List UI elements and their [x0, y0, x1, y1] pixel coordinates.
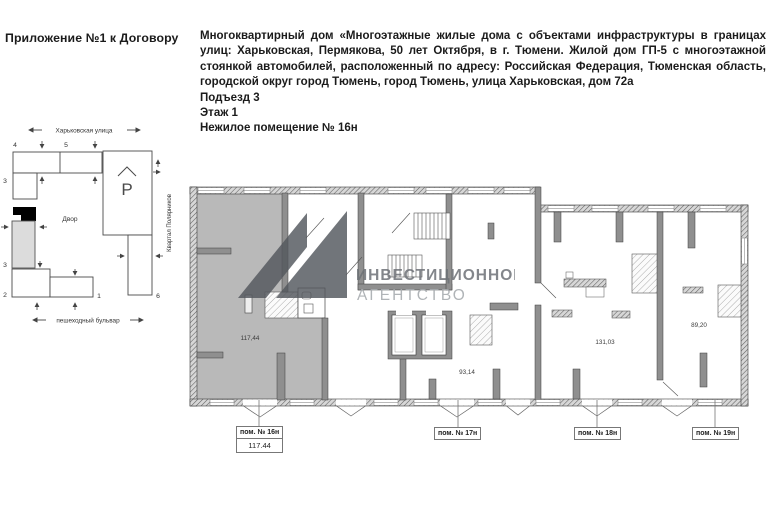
num-1: 1 [97, 293, 101, 300]
unit-box-19n: пом. № 19н [692, 427, 739, 440]
watermark-line1: ИНВЕСТИЦИОННОЕ [356, 267, 515, 284]
boulevard-label: пешеходный бульвар [56, 317, 120, 325]
unit-18n-label: пом. № 18н [575, 428, 620, 439]
area-17n: 93,14 [459, 369, 475, 376]
area-18n: 131,03 [595, 339, 615, 346]
num-5: 5 [64, 142, 68, 149]
building-description: Многоквартирный дом «Многоэтажные жилые … [200, 29, 766, 91]
unit-16n-area: 117.44 [237, 438, 282, 452]
unit-box-17n: пом. № 17н [434, 427, 481, 440]
unit-box-16n: пом. № 16н 117.44 [236, 426, 283, 453]
unit-19n-label: пом. № 19н [693, 428, 738, 439]
unit-box-18n: пом. № 18н [574, 427, 621, 440]
num-3-top: 3 [3, 178, 7, 185]
site-plan: Харьковская улица P 4 5 3 3 2 1 6 [0, 115, 190, 330]
num-6: 6 [156, 293, 160, 300]
appendix-title: Приложение №1 к Договору [5, 31, 195, 45]
watermark-line2: АГЕНТСТВО [357, 287, 467, 304]
subject-premises-marker [13, 207, 36, 221]
entrance-line: Подъезд 3 [200, 91, 766, 106]
building-description-block: Многоквартирный дом «Многоэтажные жилые … [200, 29, 766, 137]
appendix-page: Приложение №1 к Договору Многоквартирный… [0, 0, 770, 510]
unit-17n-label: пом. № 17н [435, 428, 480, 439]
num-2: 2 [3, 292, 7, 299]
agency-logo-icon [238, 211, 347, 298]
area-19n: 89,20 [691, 322, 707, 329]
street-top-label: Харьковская улица [56, 128, 113, 135]
svg-text:P: P [121, 180, 132, 199]
courtyard-label: Двор [62, 216, 78, 223]
floor-line: Этаж 1 [200, 106, 766, 121]
subject-building [12, 221, 35, 268]
unit-16n-label: пом. № 16н [237, 427, 282, 438]
agency-watermark: ИНВЕСТИЦИОННОЕ АГЕНТСТВО [225, 195, 515, 355]
num-3-bottom: 3 [3, 262, 7, 269]
quarter-right-label: Квартал Полярников [167, 194, 173, 252]
premise-line: Нежилое помещение № 16н [200, 121, 766, 136]
num-4: 4 [13, 142, 17, 149]
